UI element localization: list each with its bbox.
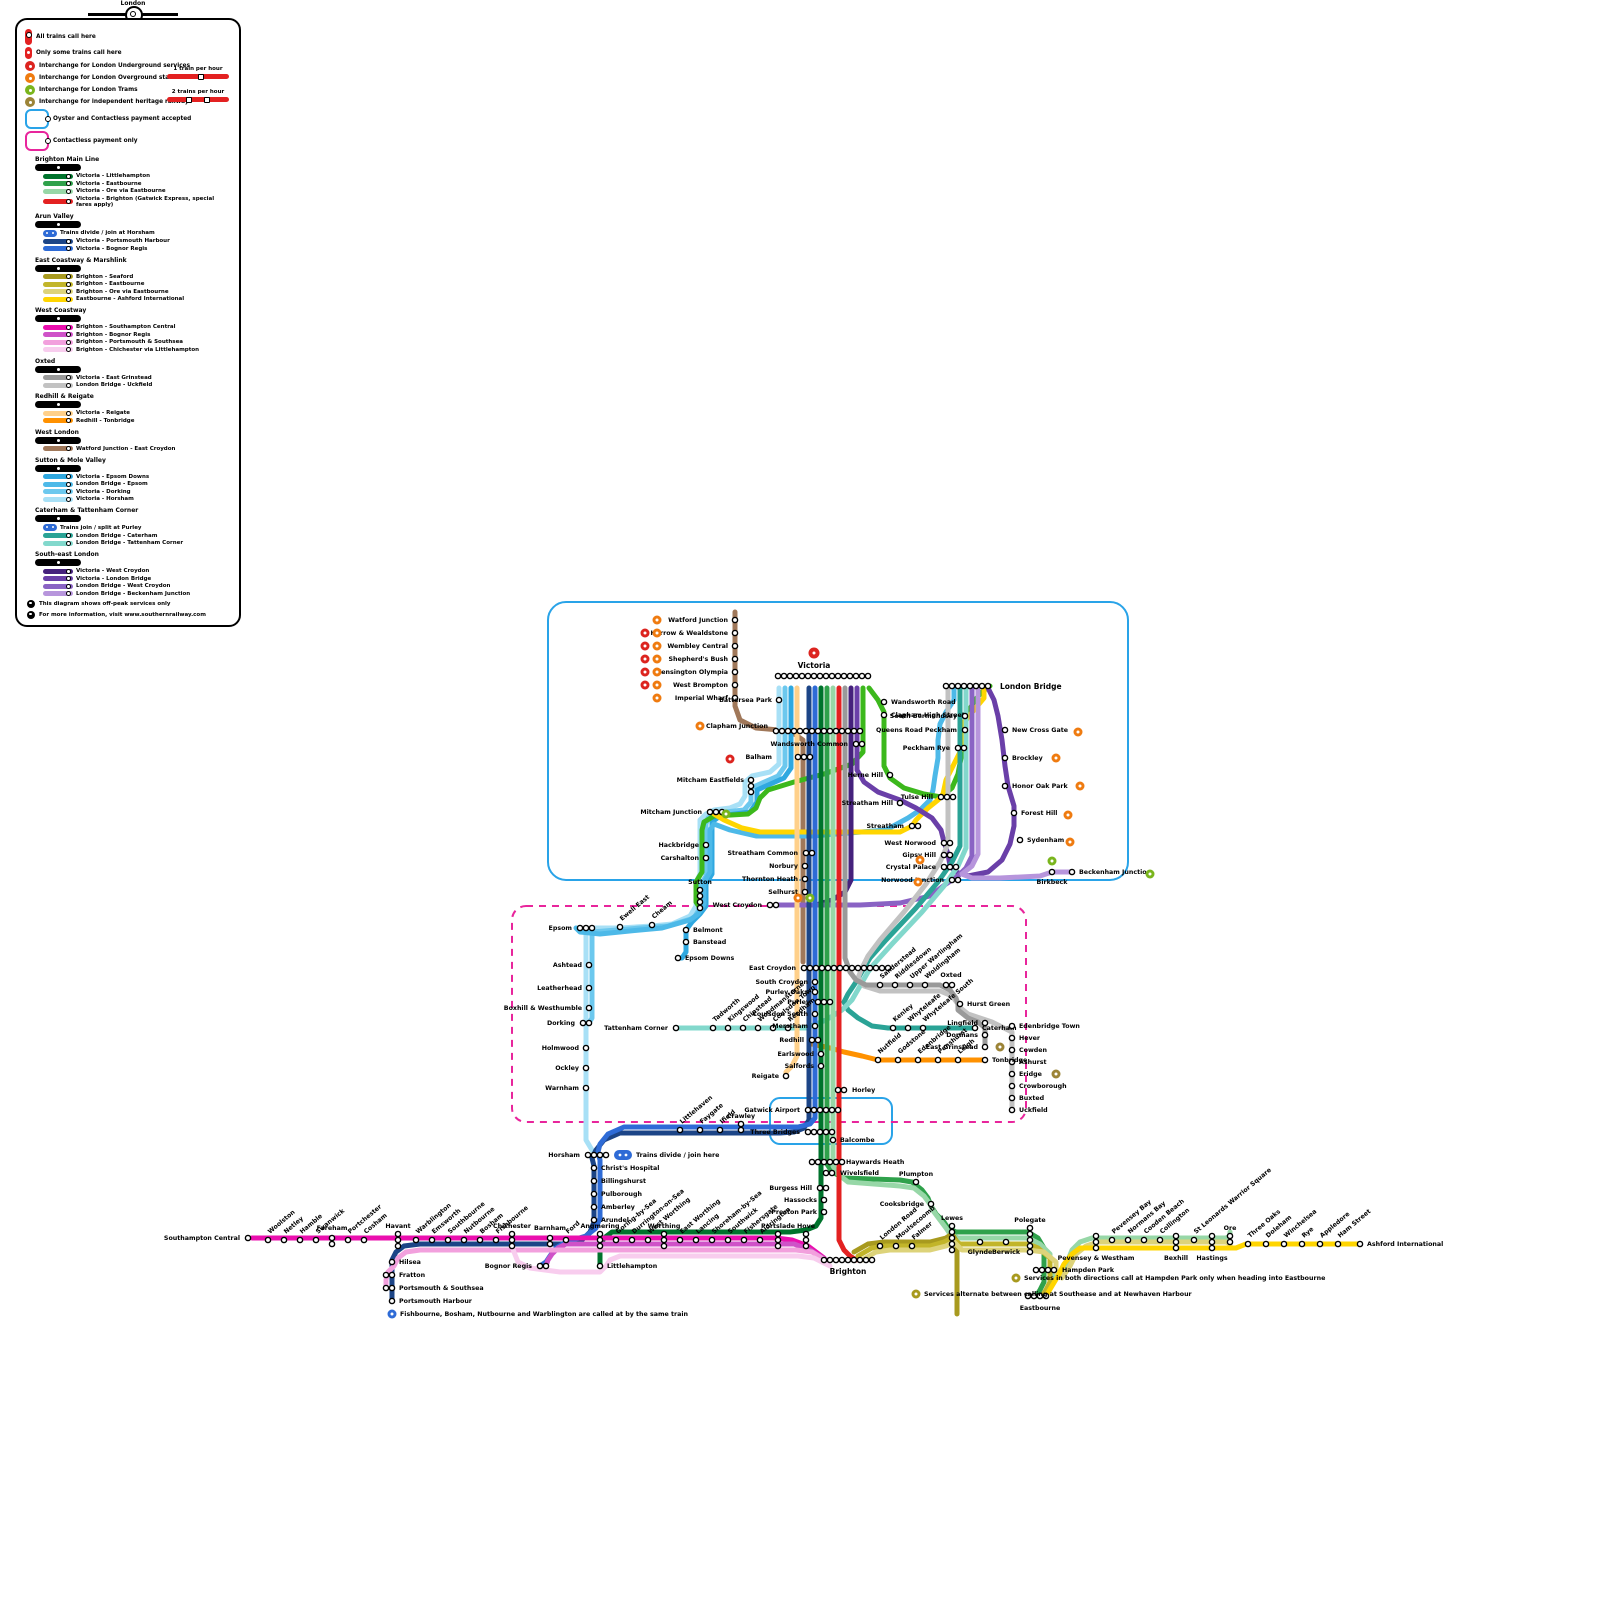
station-marker bbox=[697, 893, 702, 898]
station-marker bbox=[1209, 1245, 1214, 1250]
disc-dot bbox=[1079, 785, 1082, 788]
station-leatherhead: Leatherhead bbox=[537, 985, 592, 992]
station-marker bbox=[982, 1057, 987, 1062]
station-label: Tonbridge bbox=[992, 1057, 1027, 1064]
station-buxted: Buxted bbox=[1009, 1095, 1044, 1102]
station-marker bbox=[887, 772, 892, 777]
station-marker bbox=[732, 643, 737, 648]
lo-interchange-icon bbox=[916, 856, 925, 865]
lu-interchange-icon bbox=[641, 668, 650, 677]
station-marker bbox=[1093, 1233, 1098, 1238]
lu-interchange-icon bbox=[809, 648, 820, 659]
station-marker bbox=[819, 965, 824, 970]
station-label: Rye bbox=[1301, 1226, 1315, 1240]
disc-dot bbox=[656, 697, 659, 700]
station-victoria: Victoria bbox=[775, 661, 870, 679]
station-marker bbox=[395, 1243, 400, 1248]
station-marker bbox=[839, 728, 844, 733]
station-marker bbox=[783, 1073, 788, 1078]
station-marker bbox=[748, 783, 753, 788]
station-marker bbox=[773, 728, 778, 733]
station-marker bbox=[675, 955, 680, 960]
station-marker bbox=[563, 1237, 568, 1242]
station-marker bbox=[821, 1257, 826, 1262]
map-stations: Watford JunctionHarrow & WealdstoneWembl… bbox=[164, 617, 1443, 1312]
station-marker bbox=[661, 1231, 666, 1236]
station-marker bbox=[1299, 1241, 1304, 1246]
station-label: Edenbridge Town bbox=[1019, 1023, 1080, 1030]
station-label: Hove bbox=[797, 1223, 815, 1230]
station-marker bbox=[811, 1107, 816, 1112]
station-marker bbox=[1045, 1267, 1050, 1272]
station-label: Hassocks bbox=[784, 1197, 817, 1204]
station-streatham-hill: Streatham Hill bbox=[842, 800, 903, 807]
station-marker bbox=[649, 922, 654, 927]
station-marker bbox=[1209, 1233, 1214, 1238]
station-marker bbox=[949, 1235, 954, 1240]
station-label: Queens Road Peckham bbox=[876, 727, 957, 734]
disc-dot bbox=[644, 684, 647, 687]
station-marker bbox=[859, 741, 864, 746]
station-marker bbox=[831, 965, 836, 970]
station-portsmouth-harbour: Portsmouth Harbour bbox=[389, 1298, 472, 1305]
station-marker bbox=[591, 1178, 596, 1183]
pill-dot bbox=[625, 1154, 628, 1157]
station-marker bbox=[329, 1241, 334, 1246]
station-marker bbox=[461, 1237, 466, 1242]
station-label: Wandsworth Common bbox=[770, 741, 848, 748]
station-marker bbox=[843, 965, 848, 970]
station-marker bbox=[811, 1129, 816, 1134]
station-marker bbox=[591, 1204, 596, 1209]
disc-dot bbox=[656, 684, 659, 687]
station-uckfield: Uckfield bbox=[1009, 1107, 1047, 1114]
station-label: Boxhill & Westhumble bbox=[504, 1005, 582, 1012]
station-marker bbox=[807, 754, 812, 759]
station-harrow-wealdstone: Harrow & Wealdstone bbox=[651, 630, 738, 637]
station-marker bbox=[583, 1085, 588, 1090]
station-label: Selhurst bbox=[768, 889, 798, 896]
disc-dot bbox=[656, 671, 659, 674]
station-label: Wembley Central bbox=[667, 643, 728, 650]
station-marker bbox=[547, 1235, 552, 1240]
station-marker bbox=[591, 1165, 596, 1170]
station-marker bbox=[855, 965, 860, 970]
station-marker bbox=[821, 728, 826, 733]
station-label: West Brompton bbox=[673, 682, 728, 689]
station-marker bbox=[732, 630, 737, 635]
station-marker bbox=[973, 683, 978, 688]
lo-interchange-icon bbox=[653, 616, 662, 625]
station-label: West Croydon bbox=[713, 902, 762, 909]
station-marker bbox=[961, 683, 966, 688]
station-label: Pevensey & Westham bbox=[1058, 1255, 1135, 1262]
station-marker bbox=[803, 1237, 808, 1242]
station-label: Norbury bbox=[769, 863, 798, 870]
station-marker bbox=[830, 1137, 835, 1142]
station-label: Redhill bbox=[779, 1037, 804, 1044]
station-marker bbox=[591, 1191, 596, 1196]
station-bognor-regis: Bognor Regis bbox=[485, 1263, 549, 1270]
station-marker bbox=[583, 1045, 588, 1050]
station-label: Wivelsfield bbox=[840, 1170, 879, 1177]
station-marker bbox=[837, 965, 842, 970]
station-marker bbox=[629, 1237, 634, 1242]
disc-dot bbox=[1055, 757, 1058, 760]
station-label: Herne Hill bbox=[848, 772, 883, 779]
station-boxhill-westhumble: Boxhill & Westhumble bbox=[504, 1005, 592, 1012]
station-marker bbox=[982, 1032, 987, 1037]
station-marker bbox=[1357, 1241, 1362, 1246]
her-interchange-icon bbox=[996, 1043, 1005, 1052]
station-marker bbox=[922, 982, 927, 987]
station-marker bbox=[281, 1237, 286, 1242]
station-marker bbox=[905, 1025, 910, 1030]
station-marker bbox=[793, 673, 798, 678]
station-streatham: Streatham bbox=[867, 823, 921, 830]
station-christ-s-hospital: Christ's Hospital bbox=[591, 1165, 659, 1172]
station-marker bbox=[941, 864, 946, 869]
station-marker bbox=[802, 876, 807, 881]
station-label: Ore bbox=[1224, 1225, 1237, 1232]
tram-interchange-icon bbox=[806, 894, 815, 903]
disc-dot bbox=[644, 645, 647, 648]
station-marker bbox=[445, 1237, 450, 1242]
station-marker bbox=[313, 1237, 318, 1242]
disc-dot bbox=[1051, 860, 1054, 863]
station-marker bbox=[748, 789, 753, 794]
station-marker bbox=[907, 982, 912, 987]
station-label: Brighton bbox=[830, 1267, 867, 1276]
station-marker bbox=[841, 673, 846, 678]
station-label: Angmering bbox=[581, 1223, 620, 1230]
station-label: Clapham Junction bbox=[706, 723, 768, 730]
station-label: Polegate bbox=[1014, 1217, 1045, 1224]
station-marker bbox=[713, 809, 718, 814]
station-label: New Cross Gate bbox=[1012, 727, 1068, 734]
station-label: Merstham bbox=[772, 1023, 808, 1030]
lo-interchange-icon bbox=[653, 642, 662, 651]
disc-dot bbox=[1077, 731, 1080, 734]
station-marker bbox=[1173, 1239, 1178, 1244]
station-marker bbox=[591, 1217, 596, 1222]
station-marker bbox=[881, 712, 886, 717]
station-marker bbox=[1245, 1241, 1250, 1246]
station-marker bbox=[859, 673, 864, 678]
station-label: Hastings bbox=[1196, 1255, 1227, 1262]
station-marker bbox=[812, 979, 817, 984]
station-marker bbox=[586, 962, 591, 967]
station-label: Mitcham Eastfields bbox=[677, 777, 745, 784]
station-south-bermondsey: South Bermondsey bbox=[890, 713, 968, 720]
station-marker bbox=[1033, 1267, 1038, 1272]
station-marker bbox=[835, 1107, 840, 1112]
station-marker bbox=[389, 1259, 394, 1264]
station-marker bbox=[779, 728, 784, 733]
station-marker bbox=[586, 1020, 591, 1025]
station-marker bbox=[740, 1025, 745, 1030]
station-marker bbox=[967, 683, 972, 688]
station-marker bbox=[1027, 1231, 1032, 1236]
station-marker bbox=[395, 1237, 400, 1242]
station-marker bbox=[851, 1257, 856, 1262]
station-sydenham: Sydenham bbox=[1017, 837, 1064, 844]
station-battersea-park: Battersea Park bbox=[719, 697, 782, 704]
station-marker bbox=[710, 1025, 715, 1030]
station-marker bbox=[803, 1243, 808, 1248]
station-marker bbox=[493, 1237, 498, 1242]
station-label: Reigate bbox=[752, 1073, 779, 1080]
station-marker bbox=[673, 1025, 678, 1030]
disc-dot bbox=[656, 632, 659, 635]
disc-dot bbox=[644, 671, 647, 674]
station-marker bbox=[245, 1235, 250, 1240]
station-marker bbox=[1281, 1241, 1286, 1246]
station-marker bbox=[949, 683, 954, 688]
station-label: Coulsdon South bbox=[752, 1011, 808, 1018]
pill-dot bbox=[619, 1154, 622, 1157]
lo-interchange-icon bbox=[653, 694, 662, 703]
lo-interchange-icon bbox=[794, 894, 803, 903]
disc-dot bbox=[813, 652, 816, 655]
station-marker bbox=[955, 1057, 960, 1062]
station-marker bbox=[821, 1209, 826, 1214]
station-marker bbox=[813, 965, 818, 970]
station-label: Balham bbox=[745, 754, 772, 761]
station-marker bbox=[809, 1037, 814, 1042]
station-marker bbox=[812, 1023, 817, 1028]
station-wandsworth-road: Wandsworth Road bbox=[881, 699, 955, 706]
station-west-norwood: West Norwood bbox=[884, 840, 952, 847]
station-marker bbox=[845, 1257, 850, 1262]
station-tattenham-corner: Tattenham Corner bbox=[604, 1025, 679, 1032]
lo-interchange-icon bbox=[1076, 782, 1085, 791]
station-marker bbox=[949, 1229, 954, 1234]
station-gipsy-hill: Gipsy Hill bbox=[902, 852, 952, 859]
station-label: Havant bbox=[385, 1223, 410, 1230]
disc-dot bbox=[809, 897, 812, 900]
disc-dot bbox=[699, 725, 702, 728]
disc-dot bbox=[797, 897, 800, 900]
station-marker bbox=[1049, 869, 1054, 874]
station-marker bbox=[586, 1005, 591, 1010]
station-marker bbox=[825, 965, 830, 970]
station-hurst-green: Hurst Green bbox=[957, 1001, 1010, 1008]
station-marker bbox=[915, 823, 920, 828]
station-forest-hill: Forest Hill bbox=[1011, 810, 1057, 817]
lu-interchange-icon bbox=[641, 629, 650, 638]
station-marker bbox=[947, 840, 952, 845]
station-marker bbox=[1009, 1095, 1014, 1100]
station-marker bbox=[861, 965, 866, 970]
station-marker bbox=[915, 1057, 920, 1062]
station-marker bbox=[1141, 1237, 1146, 1242]
station-marker bbox=[947, 864, 952, 869]
station-marker bbox=[962, 713, 967, 718]
station-marker bbox=[738, 1121, 743, 1126]
station-marker bbox=[803, 850, 808, 855]
station-marker bbox=[807, 965, 812, 970]
station-marker bbox=[577, 925, 582, 930]
station-label: Mitcham Junction bbox=[640, 809, 702, 816]
lo-interchange-icon bbox=[696, 722, 705, 731]
station-label: Bexhill bbox=[1164, 1255, 1188, 1262]
station-marker bbox=[697, 1127, 702, 1132]
station-marker bbox=[1009, 1107, 1014, 1112]
station-marker bbox=[707, 809, 712, 814]
station-marker bbox=[1009, 1023, 1014, 1028]
station-marker bbox=[717, 1127, 722, 1132]
station-marker bbox=[829, 1170, 834, 1175]
station-label: Lingfield bbox=[947, 1020, 978, 1027]
station-label: Horley bbox=[852, 1087, 875, 1094]
station-label: Burgess Hill bbox=[769, 1185, 812, 1192]
station-marker bbox=[1002, 727, 1007, 732]
station-marker bbox=[585, 1152, 590, 1157]
station-warnham: Warnham bbox=[545, 1085, 588, 1092]
station-marker bbox=[943, 982, 948, 987]
station-label: Belmont bbox=[693, 927, 723, 934]
station-marker bbox=[801, 965, 806, 970]
disc-dot bbox=[919, 859, 922, 862]
station-marker bbox=[863, 1257, 868, 1262]
station-crowborough: Crowborough bbox=[1009, 1083, 1066, 1090]
station-marker bbox=[1027, 1225, 1032, 1230]
station-marker bbox=[955, 745, 960, 750]
station-marker bbox=[509, 1231, 514, 1236]
station-marker bbox=[1009, 1071, 1014, 1076]
station-marker bbox=[985, 683, 990, 688]
station-label: Thornton Heath bbox=[742, 876, 798, 883]
lo-interchange-icon bbox=[653, 668, 662, 677]
station-marker bbox=[603, 1152, 608, 1157]
station-marker bbox=[815, 1159, 820, 1164]
station-label: Christ's Hospital bbox=[601, 1165, 659, 1172]
station-label: Cowden bbox=[1019, 1047, 1047, 1054]
station-label: Banstead bbox=[693, 939, 726, 946]
station-marker bbox=[1011, 810, 1016, 815]
station-label: Harrow & Wealdstone bbox=[651, 630, 729, 637]
station-marker bbox=[803, 728, 808, 733]
station-marker bbox=[732, 669, 737, 674]
note-label: Services in both directions call at Hamp… bbox=[1024, 1275, 1325, 1282]
station-marker bbox=[821, 1159, 826, 1164]
station-marker bbox=[817, 673, 822, 678]
station-marker bbox=[613, 1237, 618, 1242]
station-tulse-hill: Tulse Hill bbox=[901, 794, 956, 801]
station-marker bbox=[947, 852, 952, 857]
station-marker bbox=[757, 1237, 762, 1242]
station-marker bbox=[938, 794, 943, 799]
station-label: Balcombe bbox=[840, 1137, 875, 1144]
station-marker bbox=[957, 1001, 962, 1006]
station-marker bbox=[732, 682, 737, 687]
station-marker bbox=[383, 1272, 388, 1277]
disc-dot bbox=[644, 632, 647, 635]
station-marker bbox=[361, 1237, 366, 1242]
station-marker bbox=[827, 728, 832, 733]
station-marker bbox=[821, 1197, 826, 1202]
note-icon-dot bbox=[1015, 1277, 1018, 1280]
station-marker bbox=[703, 855, 708, 860]
station-holmwood: Holmwood bbox=[542, 1045, 589, 1052]
station-marker bbox=[818, 1051, 823, 1056]
station-marker bbox=[812, 1011, 817, 1016]
station-label: Shepherd's Bush bbox=[668, 656, 728, 663]
station-label: West Norwood bbox=[884, 840, 936, 847]
station-marker bbox=[389, 1285, 394, 1290]
station-marker bbox=[543, 1263, 548, 1268]
station-marker bbox=[817, 1107, 822, 1112]
station-marker bbox=[597, 1243, 602, 1248]
tram-interchange-icon bbox=[1146, 870, 1155, 879]
station-marker bbox=[395, 1231, 400, 1236]
station-marker bbox=[890, 1025, 895, 1030]
station-marker bbox=[949, 1223, 954, 1228]
station-marker bbox=[345, 1237, 350, 1242]
station-horsham: Horsham bbox=[548, 1152, 608, 1159]
station-cowden: Cowden bbox=[1009, 1047, 1047, 1054]
station-label: Berwick bbox=[992, 1249, 1021, 1256]
station-marker bbox=[1209, 1239, 1214, 1244]
station-label: Carshalton bbox=[661, 855, 699, 862]
station-marker bbox=[741, 1237, 746, 1242]
station-marker bbox=[833, 728, 838, 733]
station-marker bbox=[597, 1237, 602, 1242]
station-marker bbox=[821, 999, 826, 1004]
map-note-1: Services in both directions call at Hamp… bbox=[1012, 1274, 1326, 1283]
station-marker bbox=[413, 1237, 418, 1242]
station-label: Hurst Green bbox=[967, 1001, 1010, 1008]
lo-interchange-icon bbox=[1064, 811, 1073, 820]
lu-interchange-icon bbox=[726, 755, 735, 764]
station-marker bbox=[725, 1025, 730, 1030]
station-wivelsfield: Wivelsfield bbox=[823, 1170, 879, 1177]
station-marker bbox=[961, 745, 966, 750]
station-marker bbox=[833, 1159, 838, 1164]
station-marker bbox=[767, 902, 772, 907]
lo-interchange-icon bbox=[1066, 838, 1075, 847]
station-marker bbox=[1069, 869, 1074, 874]
station-marker bbox=[857, 1257, 862, 1262]
station-marker bbox=[829, 673, 834, 678]
station-marker bbox=[823, 1170, 828, 1175]
station-brighton: Brighton bbox=[821, 1257, 874, 1276]
station-label: Peckham Rye bbox=[903, 745, 950, 752]
station-marker bbox=[1335, 1241, 1340, 1246]
station-label: Sutton bbox=[688, 879, 712, 886]
station-label: Glynde bbox=[968, 1249, 993, 1256]
station-label: Battersea Park bbox=[719, 697, 773, 704]
station-marker bbox=[709, 1237, 714, 1242]
station-marker bbox=[897, 800, 902, 805]
station-marker bbox=[547, 1241, 552, 1246]
station-label: Cheam bbox=[651, 899, 674, 920]
station-label: Crowborough bbox=[1019, 1083, 1067, 1090]
station-marker bbox=[1027, 1237, 1032, 1242]
station-label: Portsmouth & Southsea bbox=[399, 1285, 484, 1292]
station-label: Lewes bbox=[941, 1215, 963, 1222]
station-marker bbox=[857, 728, 862, 733]
station-marker bbox=[823, 673, 828, 678]
station-marker bbox=[693, 1237, 698, 1242]
station-marker bbox=[827, 999, 832, 1004]
note-label: Services alternate between calling at So… bbox=[924, 1291, 1193, 1298]
station-marker bbox=[827, 1159, 832, 1164]
station-marker bbox=[697, 899, 702, 904]
station-label: Hilsea bbox=[399, 1259, 421, 1266]
station-marker bbox=[881, 699, 886, 704]
